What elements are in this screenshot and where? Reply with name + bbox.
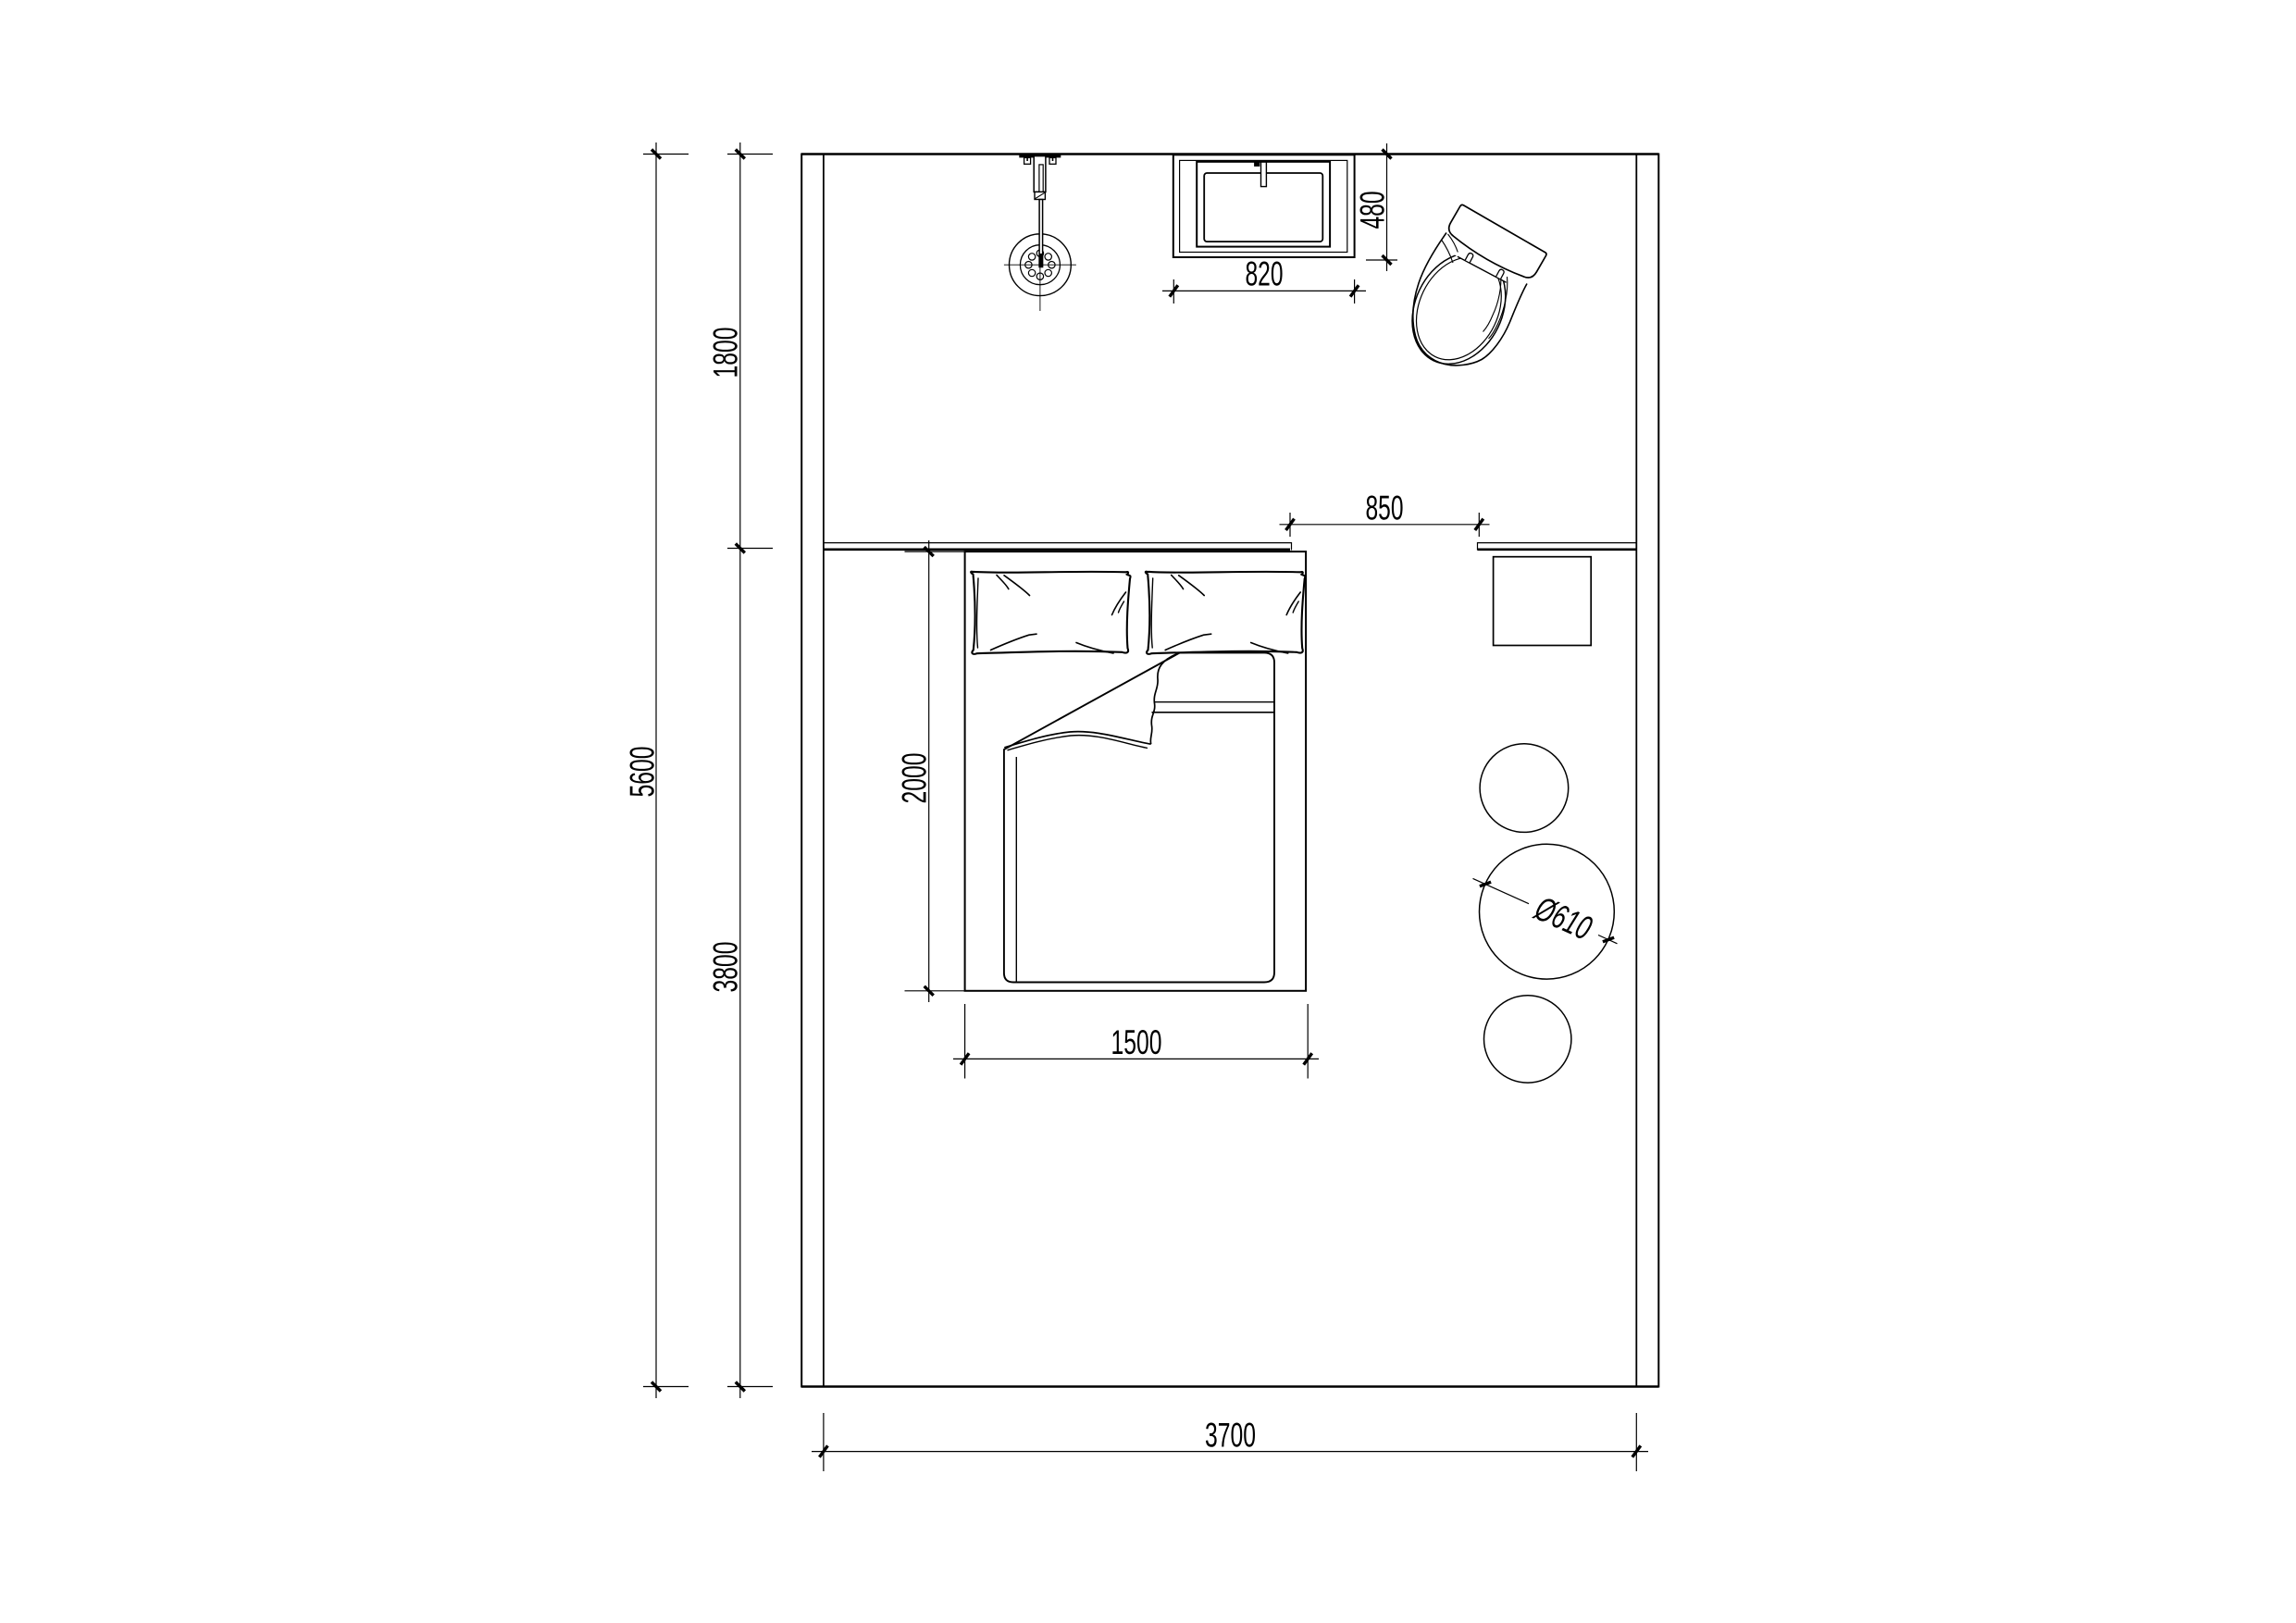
svg-text:480: 480 [1354, 192, 1392, 229]
svg-text:3800: 3800 [707, 942, 745, 993]
svg-text:5600: 5600 [624, 747, 662, 798]
svg-text:820: 820 [1246, 255, 1284, 293]
svg-text:1800: 1800 [707, 328, 745, 378]
svg-text:1500: 1500 [1111, 1023, 1162, 1061]
svg-text:2000: 2000 [896, 753, 934, 804]
svg-text:3700: 3700 [1205, 1417, 1256, 1455]
svg-text:850: 850 [1366, 489, 1404, 527]
